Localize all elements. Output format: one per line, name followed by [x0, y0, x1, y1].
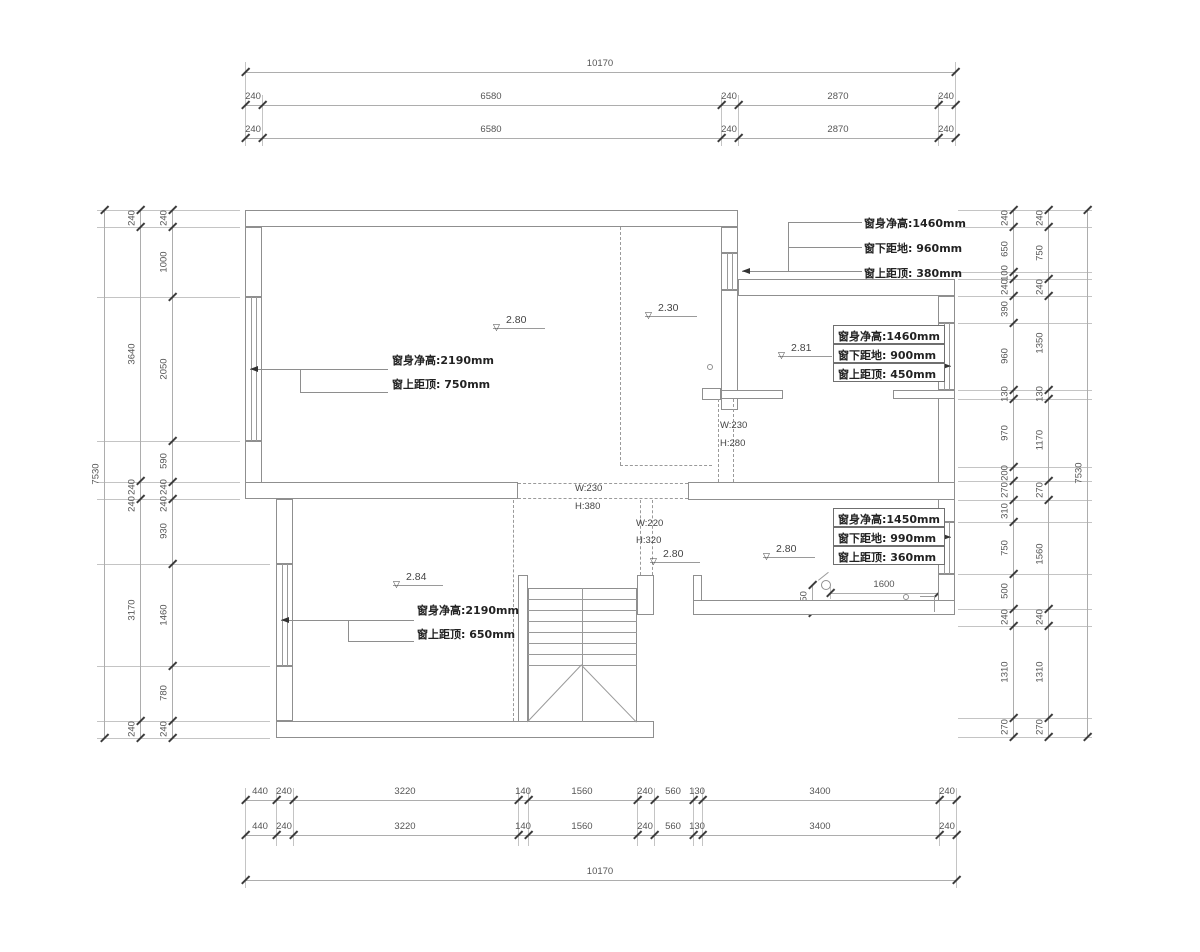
dimension-label: 750 — [1000, 540, 1011, 556]
extension-line — [958, 500, 1092, 501]
dimension-label: 3220 — [394, 786, 415, 797]
level-value: 2.84 — [406, 571, 426, 583]
dimension-label: 270 — [1035, 719, 1046, 735]
dimension-label: 240 — [159, 496, 170, 512]
dimension-label: 1310 — [1035, 661, 1046, 682]
dimension-label: 1000 — [159, 251, 170, 272]
level-line — [645, 316, 697, 317]
dimension-label: 240 — [1000, 210, 1011, 226]
window-glazing-line — [282, 564, 283, 666]
level-line — [778, 356, 832, 357]
extension-line — [97, 721, 270, 722]
window-annotation: 窗上距顶: 380mm — [864, 265, 962, 281]
dimension-label: 1560 — [571, 786, 592, 797]
dimension-label: 3400 — [809, 786, 830, 797]
dimension-label: 240 — [159, 721, 170, 737]
window-annotation: H:320 — [636, 535, 661, 546]
dimension-label: 240 — [159, 479, 170, 495]
stair-line — [582, 588, 583, 722]
level-line — [650, 562, 700, 563]
dashed-line — [518, 483, 688, 484]
extension-line — [958, 626, 1092, 627]
dimension-label: 240 — [1035, 279, 1046, 295]
dimension-label: 140 — [515, 821, 531, 832]
dimension-label: 440 — [252, 821, 268, 832]
floor-plan-canvas: 1017024065802402870240240658024028702404… — [0, 0, 1200, 952]
dimension-label: 310 — [1000, 503, 1011, 519]
window-annotation: H:280 — [720, 438, 745, 449]
leader-line — [348, 620, 349, 641]
extension-line — [958, 323, 1092, 324]
window-glazing-line — [949, 323, 950, 390]
extension-line — [97, 564, 270, 565]
level-triangle-icon: ▽ — [645, 311, 652, 320]
window-annotation: 窗上距顶: 650mm — [417, 626, 515, 642]
dimension-label: 240 — [721, 124, 737, 135]
window-glazing-line — [287, 564, 288, 666]
level-triangle-icon: ▽ — [650, 557, 657, 566]
leader-line — [300, 369, 301, 392]
dimension-label: 2870 — [827, 91, 848, 102]
fixture-circle — [903, 594, 909, 600]
leader-line — [348, 641, 414, 642]
extension-line — [956, 788, 957, 888]
extension-line — [958, 718, 1092, 719]
wall — [938, 390, 955, 522]
dimension-label: 590 — [159, 453, 170, 469]
extension-line — [958, 390, 1092, 391]
window — [721, 253, 738, 290]
extension-line — [958, 227, 1092, 228]
dimension-label: 130 — [689, 786, 705, 797]
window-annotation: 窗身净高:2190mm — [417, 602, 519, 618]
wall — [688, 482, 955, 500]
wall — [938, 296, 955, 323]
extension-line — [958, 574, 1092, 575]
dimension-label: 6580 — [480, 91, 501, 102]
level-triangle-icon: ▽ — [778, 351, 785, 360]
window-annotation-box-row: 窗上距顶: 450mm — [833, 363, 945, 382]
dimension-label: 240 — [1000, 609, 1011, 625]
dimension-label: 440 — [252, 786, 268, 797]
window-annotation-box-row: 窗下距地: 900mm — [833, 344, 945, 363]
dimension-label: 3220 — [394, 821, 415, 832]
window-annotation: W:230 — [575, 483, 602, 494]
dimension-line — [830, 593, 938, 594]
dimension-label: 240 — [127, 479, 138, 495]
dimension-line — [172, 210, 173, 738]
dimension-label: 10170 — [587, 58, 613, 69]
dimension-label: 6580 — [480, 124, 501, 135]
dimension-label: 240 — [938, 124, 954, 135]
window-annotation: 窗身净高:1460mm — [864, 215, 966, 231]
dimension-label: 560 — [665, 821, 681, 832]
dimension-label: 650 — [1000, 241, 1011, 257]
dimension-label: 3640 — [127, 343, 138, 364]
dimension-label: 270 — [1000, 482, 1011, 498]
dimension-label: 240 — [1000, 279, 1011, 295]
dimension-label: 750 — [1035, 245, 1046, 261]
dimension-line — [1087, 210, 1088, 737]
extension-line — [958, 481, 1092, 482]
wall — [518, 575, 528, 722]
dimension-label: 1310 — [1000, 661, 1011, 682]
dimension-label: 240 — [721, 91, 737, 102]
window-annotation-box-row: 窗身净高:1460mm — [833, 325, 945, 344]
dimension-label: 240 — [245, 91, 261, 102]
extension-line — [245, 788, 246, 888]
extension-line — [958, 737, 1092, 738]
dashed-line — [620, 465, 712, 466]
dimension-line — [245, 880, 956, 881]
extension-line — [958, 296, 1092, 297]
level-triangle-icon: ▽ — [493, 323, 500, 332]
dimension-label: 960 — [1000, 348, 1011, 364]
leader-arrow-icon — [250, 366, 258, 372]
window-annotation: 窗身净高:2190mm — [392, 352, 494, 368]
dashed-line — [518, 498, 688, 499]
extension-line — [958, 609, 1092, 610]
dimension-label: 240 — [637, 821, 653, 832]
dimension-label: 1600 — [873, 579, 894, 590]
extension-line — [958, 399, 1092, 400]
stair-line — [934, 596, 935, 612]
stair-line — [920, 596, 934, 597]
level-value: 2.80 — [506, 314, 526, 326]
dimension-label: 240 — [245, 124, 261, 135]
dimension-label: 240 — [276, 821, 292, 832]
dimension-label: 560 — [665, 786, 681, 797]
window-annotation: H:380 — [575, 501, 600, 512]
leader-line — [788, 247, 862, 248]
level-triangle-icon: ▽ — [763, 552, 770, 561]
dimension-label: 240 — [938, 91, 954, 102]
dimension-line — [104, 210, 105, 738]
leader-line — [742, 271, 862, 272]
dimension-label: 10170 — [587, 866, 613, 877]
extension-line — [97, 738, 270, 739]
dimension-label: 970 — [1000, 425, 1011, 441]
dimension-label: 200 — [1000, 465, 1011, 481]
dimension-line — [245, 138, 955, 139]
window-glazing-line — [727, 253, 728, 290]
dimension-label: 270 — [1035, 482, 1046, 498]
window-glazing-line — [732, 253, 733, 290]
wall — [721, 227, 738, 253]
dimension-label: 240 — [276, 786, 292, 797]
dimension-line — [140, 210, 141, 738]
leader-line — [300, 392, 388, 393]
dimension-line — [245, 105, 955, 106]
extension-line — [958, 279, 1092, 280]
level-value: 2.80 — [776, 543, 796, 555]
dimension-label: 240 — [127, 496, 138, 512]
fixture-circle — [707, 364, 713, 370]
level-line — [393, 585, 443, 586]
dimension-label: 3170 — [127, 599, 138, 620]
dimension-label: 500 — [1000, 583, 1011, 599]
dimension-line — [245, 72, 955, 73]
level-value: 2.80 — [663, 548, 683, 560]
level-line — [493, 328, 545, 329]
dimension-label: 7530 — [1074, 462, 1085, 483]
extension-line — [958, 272, 1092, 273]
window-annotation-box-row: 窗上距顶: 360mm — [833, 546, 945, 565]
dimension-line — [245, 800, 956, 801]
dimension-label: 240 — [939, 821, 955, 832]
dimension-label: 780 — [159, 685, 170, 701]
dimension-label: 240 — [159, 210, 170, 226]
extension-line — [958, 522, 1092, 523]
dimension-label: 2050 — [159, 358, 170, 379]
window-annotation-box-row: 窗身净高:1450mm — [833, 508, 945, 527]
level-triangle-icon: ▽ — [393, 580, 400, 589]
dimension-label: 1560 — [571, 821, 592, 832]
window-annotation: 窗下距地: 960mm — [864, 240, 962, 256]
wall — [276, 499, 293, 564]
wall — [738, 279, 955, 296]
dimension-label: 270 — [1000, 719, 1011, 735]
dimension-label: 240 — [127, 721, 138, 737]
dimension-label: 240 — [127, 210, 138, 226]
extension-line — [958, 210, 1092, 211]
window-annotation: 窗上距顶: 750mm — [392, 376, 490, 392]
window — [276, 564, 293, 666]
leader-line — [250, 369, 388, 370]
dimension-line — [1013, 210, 1014, 737]
dimension-label: 240 — [939, 786, 955, 797]
wall — [637, 575, 654, 615]
dimension-label: 1560 — [1035, 543, 1046, 564]
dimension-label: 130 — [1000, 386, 1011, 402]
dimension-label: 240 — [637, 786, 653, 797]
dimension-label: 240 — [1035, 210, 1046, 226]
wall — [245, 227, 262, 297]
dimension-label: 1170 — [1035, 430, 1046, 450]
level-value: 2.81 — [791, 342, 811, 354]
leader-line — [788, 222, 862, 223]
wall — [245, 482, 518, 499]
level-line — [763, 557, 815, 558]
window-annotation-box-row: 窗下距地: 990mm — [833, 527, 945, 546]
dimension-label: 240 — [1035, 609, 1046, 625]
dimension-label: 140 — [515, 786, 531, 797]
dashed-line — [620, 227, 621, 465]
level-value: 2.30 — [658, 302, 678, 314]
wall — [693, 600, 955, 615]
dashed-line — [718, 399, 719, 482]
dimension-label: 3400 — [809, 821, 830, 832]
dimension-label: 130 — [689, 821, 705, 832]
window-glazing-line — [949, 522, 950, 574]
dimension-line — [245, 835, 956, 836]
leader-line — [788, 222, 789, 271]
dimension-label: 390 — [1000, 301, 1011, 317]
wall — [721, 390, 783, 399]
leader-arrow-icon — [742, 268, 750, 274]
extension-line — [958, 467, 1092, 468]
dimension-label: 930 — [159, 523, 170, 539]
dimension-label: 2870 — [827, 124, 848, 135]
dimension-label: 7530 — [91, 463, 102, 484]
window-annotation: W:230 — [720, 420, 747, 431]
wall — [893, 390, 955, 399]
extension-line — [97, 666, 270, 667]
wall — [276, 666, 293, 721]
wall — [245, 210, 738, 227]
window-annotation: W:220 — [636, 518, 663, 529]
dimension-label: 1460 — [159, 604, 170, 625]
dimension-label: 1350 — [1035, 332, 1046, 353]
leader-arrow-icon — [281, 617, 289, 623]
fixture-circle — [821, 580, 831, 590]
dimension-label: 130 — [1035, 386, 1046, 402]
wall — [276, 721, 654, 738]
dimension-line — [1048, 210, 1049, 737]
